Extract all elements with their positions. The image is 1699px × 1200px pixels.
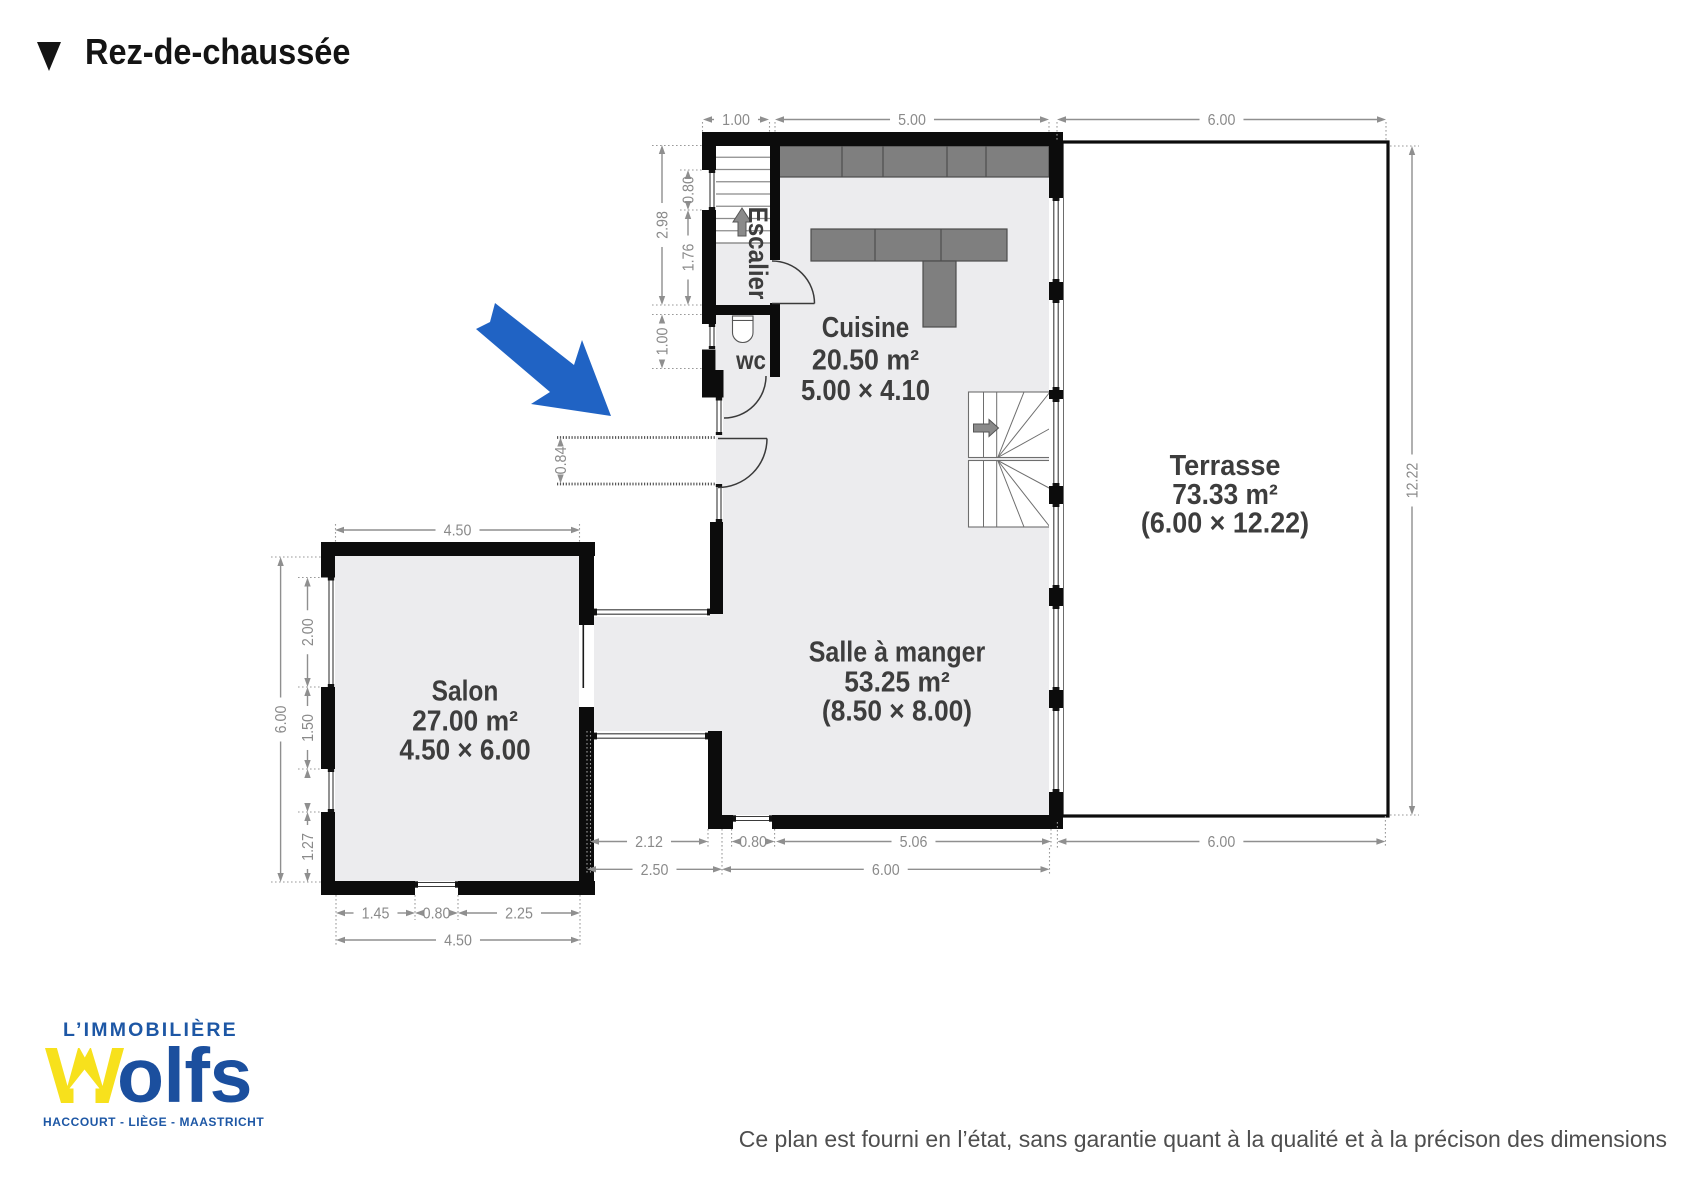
svg-text:(6.00 × 12.22): (6.00 × 12.22) (1141, 507, 1309, 539)
svg-text:Terrasse: Terrasse (1170, 449, 1281, 481)
svg-text:27.00 m²: 27.00 m² (412, 704, 518, 736)
svg-text:2.25: 2.25 (505, 906, 533, 923)
svg-text:Salon: Salon (432, 675, 499, 707)
svg-text:wc: wc (735, 346, 766, 375)
svg-text:1.00: 1.00 (655, 328, 672, 356)
svg-text:(8.50 × 8.00): (8.50 × 8.00) (822, 695, 972, 727)
svg-text:53.25 m²: 53.25 m² (844, 666, 949, 698)
svg-text:12.22: 12.22 (1405, 463, 1422, 499)
svg-text:73.33 m²: 73.33 m² (1172, 478, 1277, 510)
svg-text:0.80: 0.80 (739, 835, 767, 852)
svg-text:6.00: 6.00 (274, 706, 291, 734)
svg-text:2.98: 2.98 (655, 211, 672, 239)
svg-text:Cuisine: Cuisine (822, 311, 909, 343)
svg-text:20.50 m²: 20.50 m² (812, 344, 919, 376)
svg-text:6.00: 6.00 (872, 862, 900, 879)
svg-text:4.50 × 6.00: 4.50 × 6.00 (399, 733, 530, 765)
svg-text:2.00: 2.00 (301, 618, 318, 646)
svg-text:4.50: 4.50 (444, 933, 472, 950)
svg-text:0.80: 0.80 (681, 176, 698, 204)
svg-text:2.50: 2.50 (641, 862, 669, 879)
svg-text:1.27: 1.27 (301, 833, 318, 861)
svg-text:1.76: 1.76 (681, 244, 698, 272)
svg-text:2.12: 2.12 (635, 835, 663, 852)
svg-text:Salle à manger: Salle à manger (809, 636, 986, 668)
svg-text:5.06: 5.06 (900, 835, 928, 852)
svg-text:5.00: 5.00 (898, 113, 926, 130)
svg-text:Escalier: Escalier (743, 207, 772, 300)
svg-text:0.80: 0.80 (423, 906, 451, 923)
svg-text:6.00: 6.00 (1208, 113, 1236, 130)
svg-text:0.84: 0.84 (554, 447, 571, 475)
svg-text:5.00 × 4.10: 5.00 × 4.10 (801, 374, 930, 407)
svg-text:6.00: 6.00 (1208, 835, 1236, 852)
svg-text:1.50: 1.50 (301, 714, 318, 742)
svg-text:1.00: 1.00 (722, 113, 750, 130)
svg-text:1.45: 1.45 (362, 906, 390, 923)
svg-text:4.50: 4.50 (444, 523, 472, 540)
